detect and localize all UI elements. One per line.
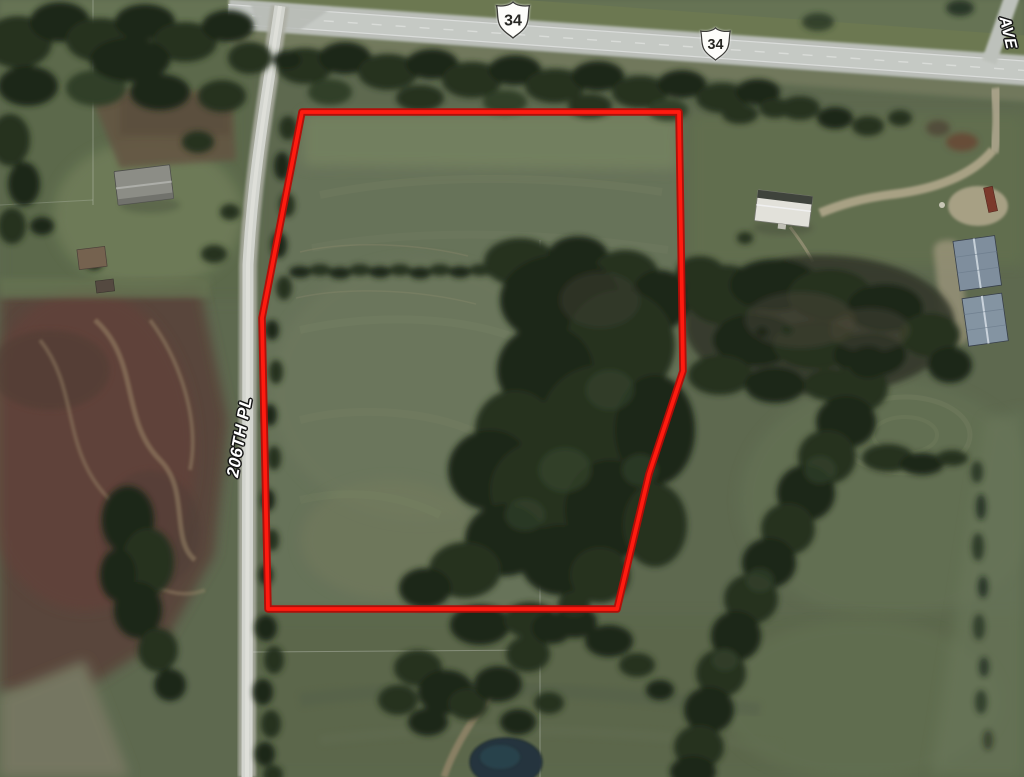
aerial-imagery <box>0 0 1024 777</box>
color-grade <box>0 0 1024 777</box>
satellite-map[interactable]: 34 34 206TH PL AVE <box>0 0 1024 777</box>
